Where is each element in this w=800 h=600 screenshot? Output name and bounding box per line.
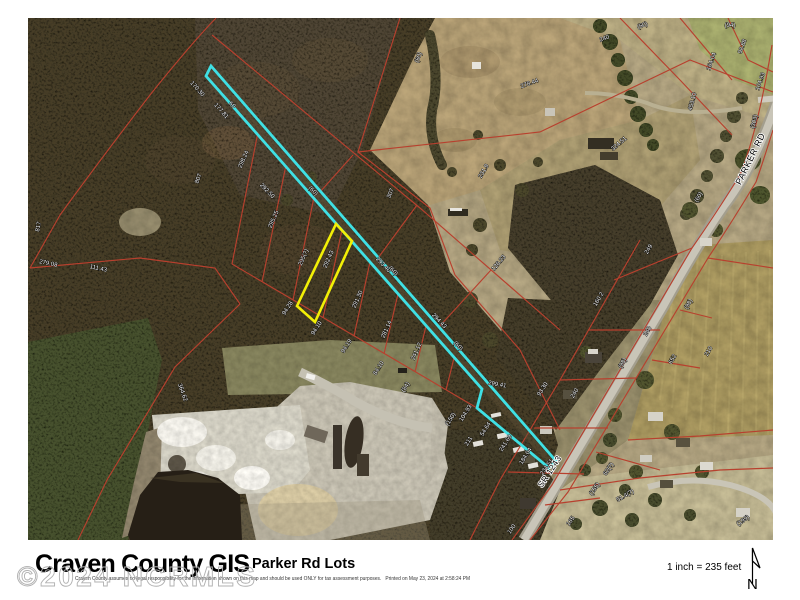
svg-text:(94): (94) [725, 23, 736, 29]
svg-text:Parker Rd Lots: Parker Rd Lots [252, 556, 355, 572]
svg-text:1 inch = 235 feet: 1 inch = 235 feet [667, 562, 741, 573]
svg-text:©2024 NCRMLS: ©2024 NCRMLS [17, 561, 257, 592]
svg-text:N: N [747, 576, 758, 593]
